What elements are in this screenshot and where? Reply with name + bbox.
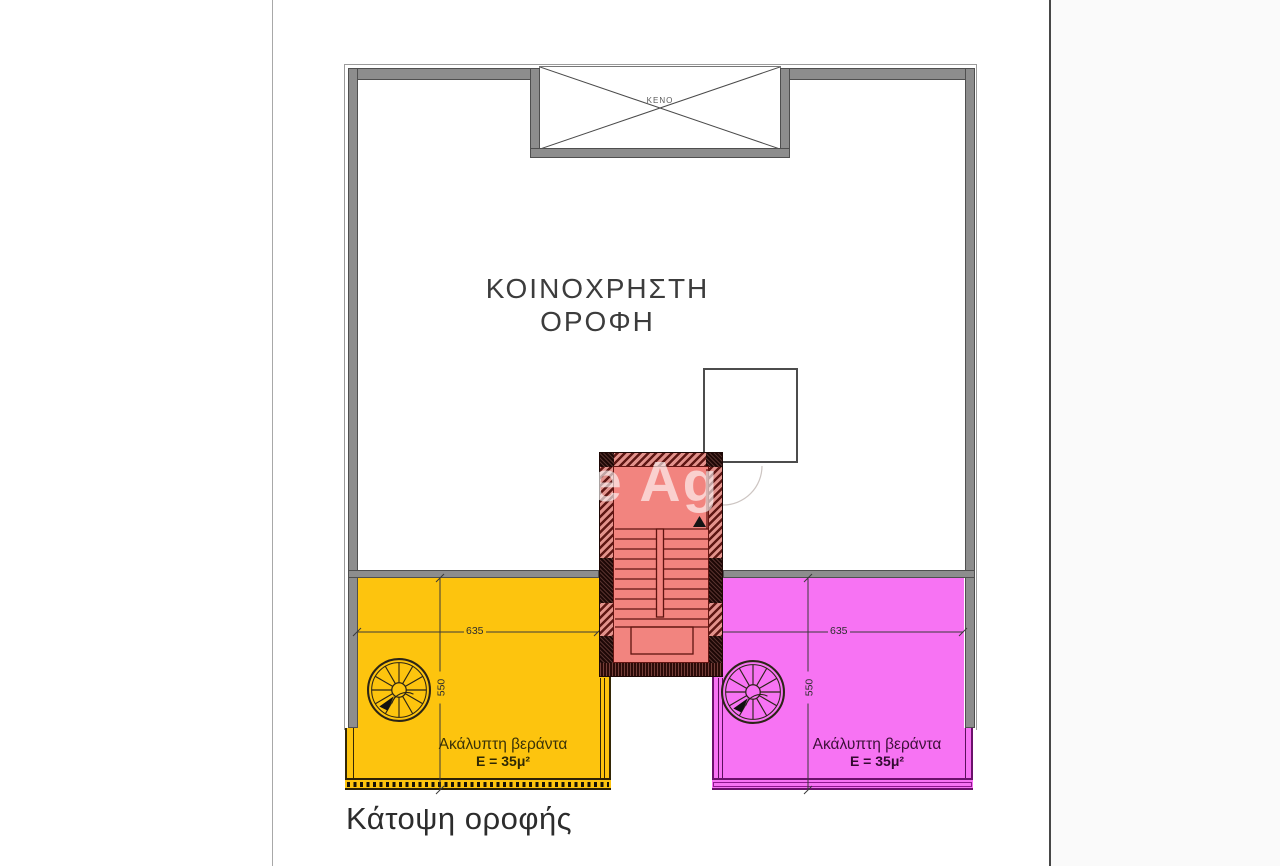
veranda-right-name: Ακάλυπτη βεράντα xyxy=(772,737,982,753)
stair-wall-bottom xyxy=(600,663,722,676)
drawing-caption: Κάτοψη οροφής xyxy=(346,801,572,837)
plan-outline-left xyxy=(344,64,345,730)
wall-void-left xyxy=(530,68,540,158)
veranda-right-label: Ακάλυπτη βεράντα E = 35μ² xyxy=(772,737,982,769)
roof-plan-drawing: ΚΕΝΟ ΚΟΙΝΟΧΡΗΣΤΗ ΟΡΟΦΗ 635 635 550 550 xyxy=(0,0,1280,866)
veranda-left-area-value: E = 35μ² xyxy=(398,753,608,769)
wall-mid-left xyxy=(348,570,599,578)
plan-outline-right xyxy=(976,64,977,730)
wall-top-left xyxy=(348,68,538,80)
page-edge-line-left xyxy=(272,0,273,866)
stair-wall-block xyxy=(709,558,722,603)
railing-double-line xyxy=(713,782,972,787)
veranda-left-bottom-railing xyxy=(345,778,611,790)
spiral-stair-left-icon xyxy=(367,658,431,722)
plan-outline-top xyxy=(344,64,977,65)
dim-depth-right: 550 xyxy=(804,672,817,704)
wall-top-right xyxy=(782,68,975,80)
common-roof-label-line1: ΚΟΙΝΟΧΡΗΣΤΗ xyxy=(450,272,745,305)
wall-left xyxy=(348,68,358,728)
dim-width-right: 635 xyxy=(828,625,850,638)
void-opening: ΚΕΝΟ xyxy=(539,66,781,150)
common-roof-label: ΚΟΙΝΟΧΡΗΣΤΗ ΟΡΟΦΗ xyxy=(450,272,745,338)
page-right-margin xyxy=(1051,0,1280,866)
dim-width-left: 635 xyxy=(464,625,486,638)
spiral-stair-right-icon xyxy=(721,660,785,724)
veranda-right-area-value: E = 35μ² xyxy=(772,753,982,769)
veranda-left-name: Ακάλυπτη βεράντα xyxy=(398,737,608,753)
door-swing-arc xyxy=(723,466,762,505)
stair-strip-line-right-a xyxy=(718,678,719,778)
wall-void-bottom xyxy=(530,148,790,158)
watermark-text: e Ag xyxy=(590,449,719,515)
veranda-right-bottom-railing xyxy=(712,778,973,790)
railing-baluster-pattern xyxy=(347,782,609,787)
void-cross-icon xyxy=(540,67,780,149)
wall-mid-right xyxy=(723,570,975,578)
void-label: ΚΕΝΟ xyxy=(540,96,780,105)
wall-right xyxy=(965,68,975,728)
stair-wall-block xyxy=(600,558,613,603)
wall-void-right xyxy=(780,68,790,158)
page-edge-line-right xyxy=(1049,0,1051,866)
common-roof-label-line2: ΟΡΟΦΗ xyxy=(450,305,745,338)
dim-depth-left: 550 xyxy=(436,672,449,704)
veranda-left-label: Ακάλυπτη βεράντα E = 35μ² xyxy=(398,737,608,769)
